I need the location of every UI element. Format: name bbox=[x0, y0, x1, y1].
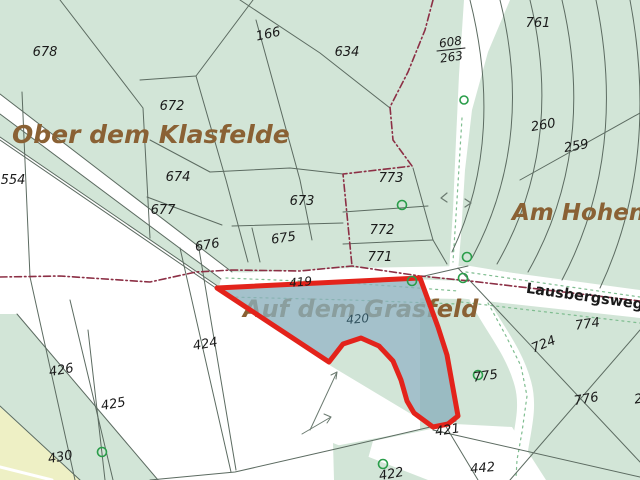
map-canvas[interactable]: Auf dem Grasfeld678166634761608263672260… bbox=[0, 0, 640, 480]
place-label-am-hohen: Am Hohen bbox=[510, 200, 640, 226]
parcel-label-672: 672 bbox=[160, 99, 185, 114]
parcel-label-edge-2: 2 bbox=[633, 392, 640, 408]
cadastral-map-view: Auf dem Grasfeld678166634761608263672260… bbox=[0, 0, 640, 480]
parcel-label-634: 634 bbox=[335, 45, 360, 60]
parcel-label-771: 771 bbox=[368, 250, 393, 265]
parcel-label-419: 419 bbox=[289, 274, 313, 290]
parcel-label-772: 772 bbox=[370, 223, 395, 238]
parcel-label-773: 773 bbox=[379, 171, 404, 186]
place-label-klasfelde: Ober dem Klasfelde bbox=[12, 120, 290, 149]
parcel-label-761: 761 bbox=[526, 16, 551, 31]
parcel-label-673: 673 bbox=[290, 194, 315, 209]
parcel-label-678: 678 bbox=[33, 45, 58, 60]
parcel-label-554: 554 bbox=[1, 173, 26, 188]
parcel-label-442: 442 bbox=[470, 460, 496, 477]
parcel-label-674: 674 bbox=[166, 170, 191, 185]
parcel-label-677: 677 bbox=[151, 203, 177, 218]
parcel-label-420: 420 bbox=[346, 311, 370, 327]
